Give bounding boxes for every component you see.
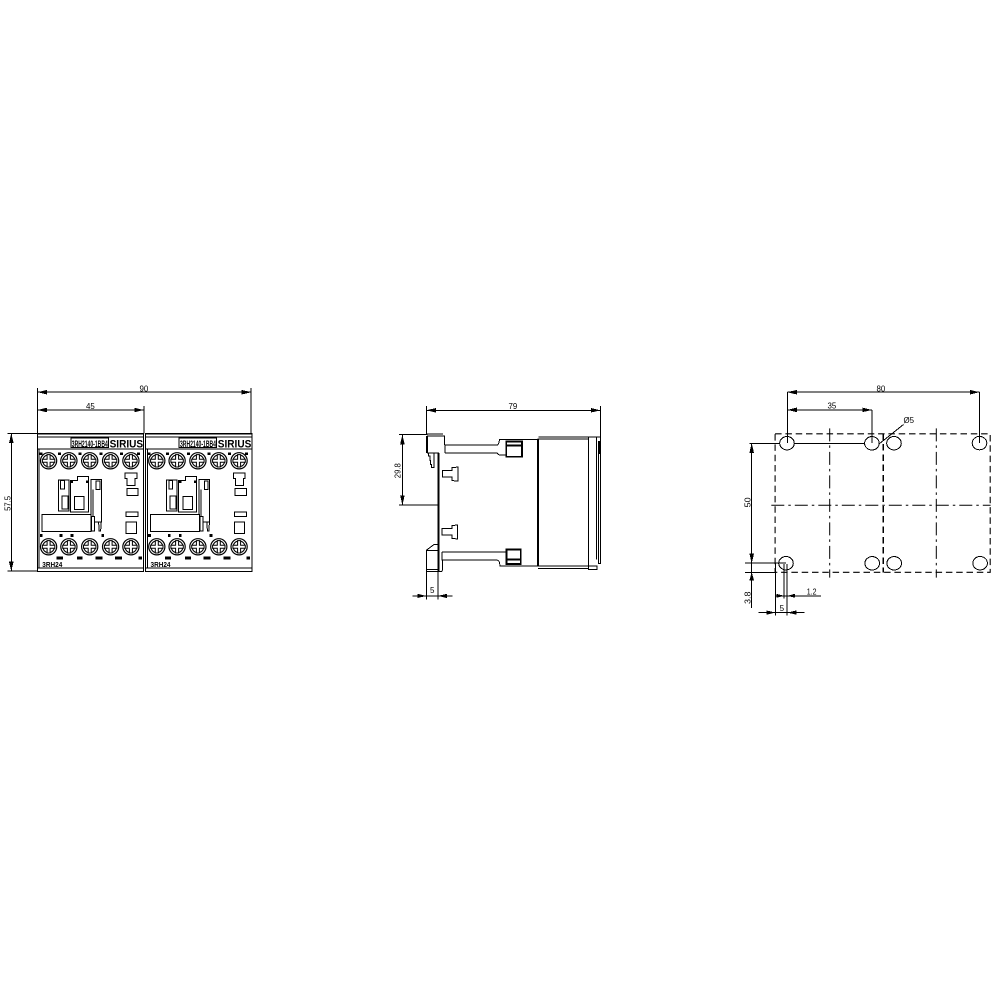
svg-text:45: 45 — [86, 402, 95, 411]
svg-text:79: 79 — [509, 402, 518, 411]
svg-text:5: 5 — [430, 586, 435, 595]
svg-text:57.5: 57.5 — [3, 495, 12, 511]
svg-text:35: 35 — [828, 402, 837, 411]
svg-text:80: 80 — [877, 385, 886, 394]
svg-text:3.8: 3.8 — [744, 591, 753, 604]
svg-text:90: 90 — [140, 385, 149, 394]
svg-text:1.2: 1.2 — [807, 587, 817, 596]
svg-text:5: 5 — [780, 604, 785, 613]
svg-text:29.8: 29.8 — [393, 463, 402, 479]
svg-text:50: 50 — [743, 497, 752, 508]
svg-text:Ø5: Ø5 — [904, 416, 915, 425]
